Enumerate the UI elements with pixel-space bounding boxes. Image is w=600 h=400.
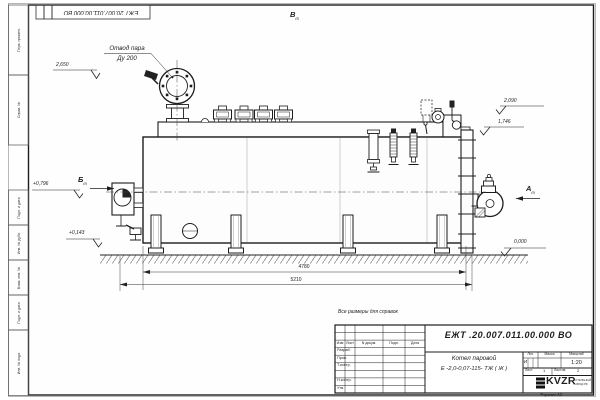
col-header-izm: Изм [335,342,345,346]
row-label-tkontr: Т.контр. [337,363,351,367]
steam-outlet-label: Отвод пара [100,46,154,53]
elevation-0796: +0,796 [33,182,48,188]
corner-stamp-number: ЕЖТ 20.007.011.00.000 ВО [52,5,150,19]
margin-label-inv-podl: Инв. № подл. [17,351,21,373]
sheets-value: 2 [577,369,579,373]
boiler-body [143,115,470,243]
margin-label-podp-data-2: Подп. и дата [17,302,21,323]
elevation-0000: 0,000 [514,240,527,246]
dimension-5210: 5210 [236,278,356,284]
product-name-line2: Е -2,0-0,07-115- ТЖ ( Ж ) [427,366,521,372]
lit-header: Лит. [523,353,538,357]
row-label-utv: Утв. [337,386,344,390]
view-label-v: В(2) [290,11,299,21]
margin-label-inv-dubl: Инв. № дубл. [17,231,21,253]
margin-label-podp-data-1: Подп. и дата [17,197,21,218]
rear-header-column [458,130,476,253]
logo-caption-line2: ЗАВОД РФ [574,383,588,386]
elevation-1746: 1,746 [498,120,511,126]
row-label-prov: Пров. [337,356,347,360]
scale-header: Масштаб [561,353,592,357]
reference-note: Все размеры для справок [338,310,398,316]
ground-hatch [100,255,528,264]
kvzr-logo-bars [536,378,545,389]
lit-value: И [523,360,528,365]
margin-label-vzam-inv: Взам. инв. № [17,266,21,288]
row-label-nkontr: Н.контр. [337,378,352,382]
title-block-doc-number: ЕЖТ .20.007.011.00.000 ВО [427,331,590,341]
col-header-podp: Подп. [383,342,405,346]
col-header-list: Лист [345,342,355,346]
mass-header: Масса [538,353,561,357]
elevation-2090: 2,090 [504,99,517,105]
format-label: Формат А3 [540,393,562,397]
view-label-a: А(2) [526,185,535,195]
sheet-value: 1 [543,369,545,373]
col-header-ndokum: N докум. [355,342,383,346]
view-label-b: Б(2) [78,176,87,186]
dimension-4780: 4780 [244,265,364,271]
elevation-2650: 2,650 [56,63,69,69]
margin-label-perv-primen: Перв. примен. [17,28,21,52]
product-name-line1: Котел паровой [427,356,521,363]
view-ref-a: (2) [531,191,535,195]
sheets-label: Листов [554,369,565,373]
view-ref-v: (2) [295,17,299,21]
col-header-data: Дата [405,342,425,346]
steam-outlet-size: Ду 200 [100,56,154,63]
elevation-0143: +0,143 [69,231,84,237]
row-label-razrab: Разраб. [337,348,351,352]
view-ref-b: (2) [83,182,87,186]
kvzr-logo-text: KVZR [546,376,576,388]
margin-label-sprav-no: Справ. № [17,102,21,118]
sheet-label: Лист [525,369,533,373]
scale-value: 1:20 [561,360,592,366]
drawing-sheet: ЕЖТ 20.007.011.00.000 ВО Перв. примен. С… [0,0,600,400]
